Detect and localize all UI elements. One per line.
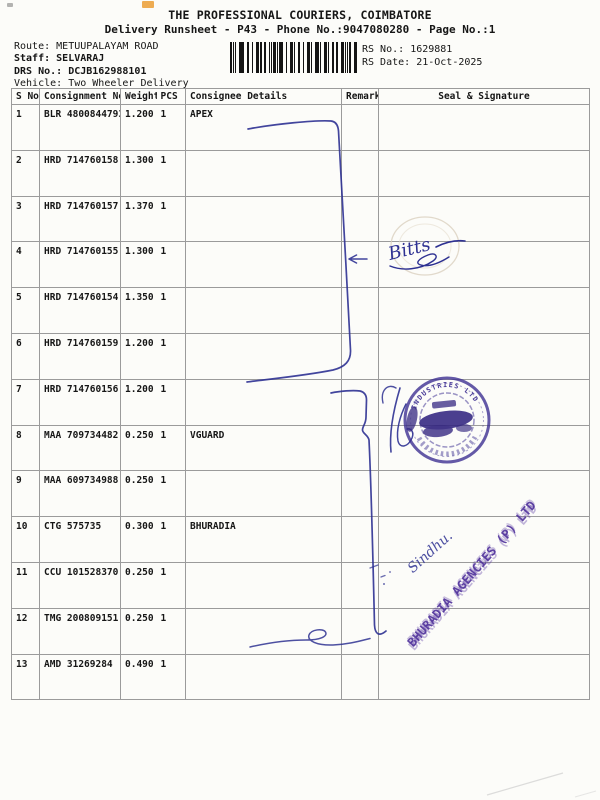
staff-label: Staff: [14,53,50,64]
route-value: METUUPALAYAM ROAD [56,41,158,52]
cell-remarks [342,333,379,379]
cell-seal [379,562,590,608]
staff-field: Staff: SELVARAJ [14,53,104,64]
cell-consignee [186,654,342,700]
cell-pcs: 1 [157,471,186,517]
cell-pcs: 1 [157,379,186,425]
cell-pcs: 1 [157,288,186,334]
cell-pcs: 1 [157,562,186,608]
route-label: Route: [14,41,50,52]
cell-pcs: 1 [157,654,186,700]
rs-no-label: RS No.: [362,44,404,55]
cell-sno: 5 [12,288,40,334]
col-weight: Weight [121,89,157,105]
cell-consignee: BHURADIA [186,517,342,563]
cell-pcs: 1 [157,196,186,242]
table-row: 5HRD 7147601541.3501 [12,288,590,334]
table-row: 9MAA 6097349880.2501 [12,471,590,517]
cell-remarks [342,562,379,608]
cell-weight: 0.300 [121,517,157,563]
cell-consignment: CTG 575735 [40,517,121,563]
table-row: 4HRD 7147601551.3001 [12,242,590,288]
cell-weight: 1.300 [121,242,157,288]
cell-sno: 11 [12,562,40,608]
cell-weight: 1.200 [121,333,157,379]
cell-remarks [342,471,379,517]
cell-weight: 1.370 [121,196,157,242]
cell-seal [379,242,590,288]
document-title: THE PROFESSIONAL COURIERS, COIMBATORE [0,8,600,22]
cell-consignee [186,562,342,608]
cell-consignment: HRD 714760154 [40,288,121,334]
cell-consignment: MAA 709734482 [40,425,121,471]
rs-no-field: RS No.: 1629881 [362,44,452,55]
cell-consignee: APEX [186,105,342,151]
table-header-row: S No Consignment No Weight PCS Consignee… [12,89,590,105]
cell-seal [379,517,590,563]
cell-weight: 1.300 [121,150,157,196]
cell-sno: 1 [12,105,40,151]
cell-consignee [186,471,342,517]
cell-sno: 9 [12,471,40,517]
cell-consignment: CCU 101528370 [40,562,121,608]
col-seal-signature: Seal & Signature [379,89,590,105]
cell-weight: 0.250 [121,608,157,654]
rs-date-value: 21-Oct-2025 [416,57,482,68]
cell-remarks [342,608,379,654]
cell-consignment: HRD 714760156 [40,379,121,425]
cell-weight: 0.250 [121,471,157,517]
scan-smudge-line [487,773,563,795]
rs-date-label: RS Date: [362,57,410,68]
route-field: Route: METUUPALAYAM ROAD [14,41,159,52]
cell-remarks [342,150,379,196]
cell-weight: 0.250 [121,425,157,471]
cell-consignment: HRD 714760159 [40,333,121,379]
cell-pcs: 1 [157,242,186,288]
cell-consignment: MAA 609734988 [40,471,121,517]
cell-weight: 0.490 [121,654,157,700]
table-row: 2HRD 7147601581.3001 [12,150,590,196]
cell-pcs: 1 [157,608,186,654]
cell-sno: 13 [12,654,40,700]
cell-seal [379,196,590,242]
cell-sno: 7 [12,379,40,425]
drs-value: DCJB162988101 [68,66,146,77]
col-consignee: Consignee Details [186,89,342,105]
cell-consignee [186,150,342,196]
cell-seal [379,150,590,196]
cell-weight: 1.200 [121,105,157,151]
cell-consignment: HRD 714760158 [40,150,121,196]
col-sno: S No [12,89,40,105]
cell-seal [379,105,590,151]
cell-remarks [342,196,379,242]
cell-remarks [342,242,379,288]
staff-value: SELVARAJ [56,53,104,64]
cell-weight: 1.350 [121,288,157,334]
cell-pcs: 1 [157,425,186,471]
cell-sno: 6 [12,333,40,379]
drs-label: DRS No.: [14,66,62,77]
table-row: 7HRD 7147601561.2001 [12,379,590,425]
table-row: 3HRD 7147601571.3701 [12,196,590,242]
col-pcs: PCS [157,89,186,105]
cell-seal [379,333,590,379]
cell-sno: 8 [12,425,40,471]
cell-consignment: HRD 714760157 [40,196,121,242]
document-subtitle: Delivery Runsheet - P43 - Phone No.:9047… [0,23,600,36]
cell-consignee [186,608,342,654]
cell-consignment: AMD 31269284 [40,654,121,700]
cell-weight: 1.200 [121,379,157,425]
table-row: 12TMG 2008091510.2501 [12,608,590,654]
scan-smudge-line-2 [575,791,596,797]
table-row: 6HRD 7147601591.2001 [12,333,590,379]
cell-seal [379,379,590,425]
table-row: 8MAA 7097344820.2501VGUARD [12,425,590,471]
cell-sno: 3 [12,196,40,242]
scan-speck [7,3,13,7]
cell-consignee [186,288,342,334]
cell-remarks [342,288,379,334]
table-row: 1BLR 48008447931.2001APEX [12,105,590,151]
col-consignment: Consignment No [40,89,121,105]
cell-consignee [186,196,342,242]
cell-remarks [342,425,379,471]
table-row: 10CTG 5757350.3001BHURADIA [12,517,590,563]
cell-remarks [342,654,379,700]
cell-remarks [342,379,379,425]
cell-pcs: 1 [157,150,186,196]
table-row: 13AMD 312692840.4901 [12,654,590,700]
cell-consignment: BLR 4800844793 [40,105,121,151]
cell-consignment: TMG 200809151 [40,608,121,654]
col-remarks: Remarks [342,89,379,105]
rs-date-field: RS Date: 21-Oct-2025 [362,57,482,68]
cell-seal [379,608,590,654]
cell-remarks [342,105,379,151]
cell-remarks [342,517,379,563]
cell-consignee: VGUARD [186,425,342,471]
table-row: 11CCU 1015283700.2501 [12,562,590,608]
cell-sno: 2 [12,150,40,196]
cell-consignee [186,379,342,425]
cell-pcs: 1 [157,517,186,563]
cell-seal [379,471,590,517]
orange-mark [142,1,154,8]
cell-sno: 4 [12,242,40,288]
rs-no-value: 1629881 [410,44,452,55]
cell-seal [379,654,590,700]
runsheet-table: S No Consignment No Weight PCS Consignee… [11,88,590,700]
cell-consignment: HRD 714760155 [40,242,121,288]
barcode-image [230,42,358,73]
cell-consignee [186,242,342,288]
cell-seal [379,288,590,334]
cell-weight: 0.250 [121,562,157,608]
cell-seal [379,425,590,471]
drs-field: DRS No.: DCJB162988101 [14,66,146,77]
cell-sno: 10 [12,517,40,563]
cell-pcs: 1 [157,105,186,151]
cell-pcs: 1 [157,333,186,379]
scanned-delivery-runsheet: THE PROFESSIONAL COURIERS, COIMBATORE De… [0,0,600,800]
cell-sno: 12 [12,608,40,654]
cell-consignee [186,333,342,379]
